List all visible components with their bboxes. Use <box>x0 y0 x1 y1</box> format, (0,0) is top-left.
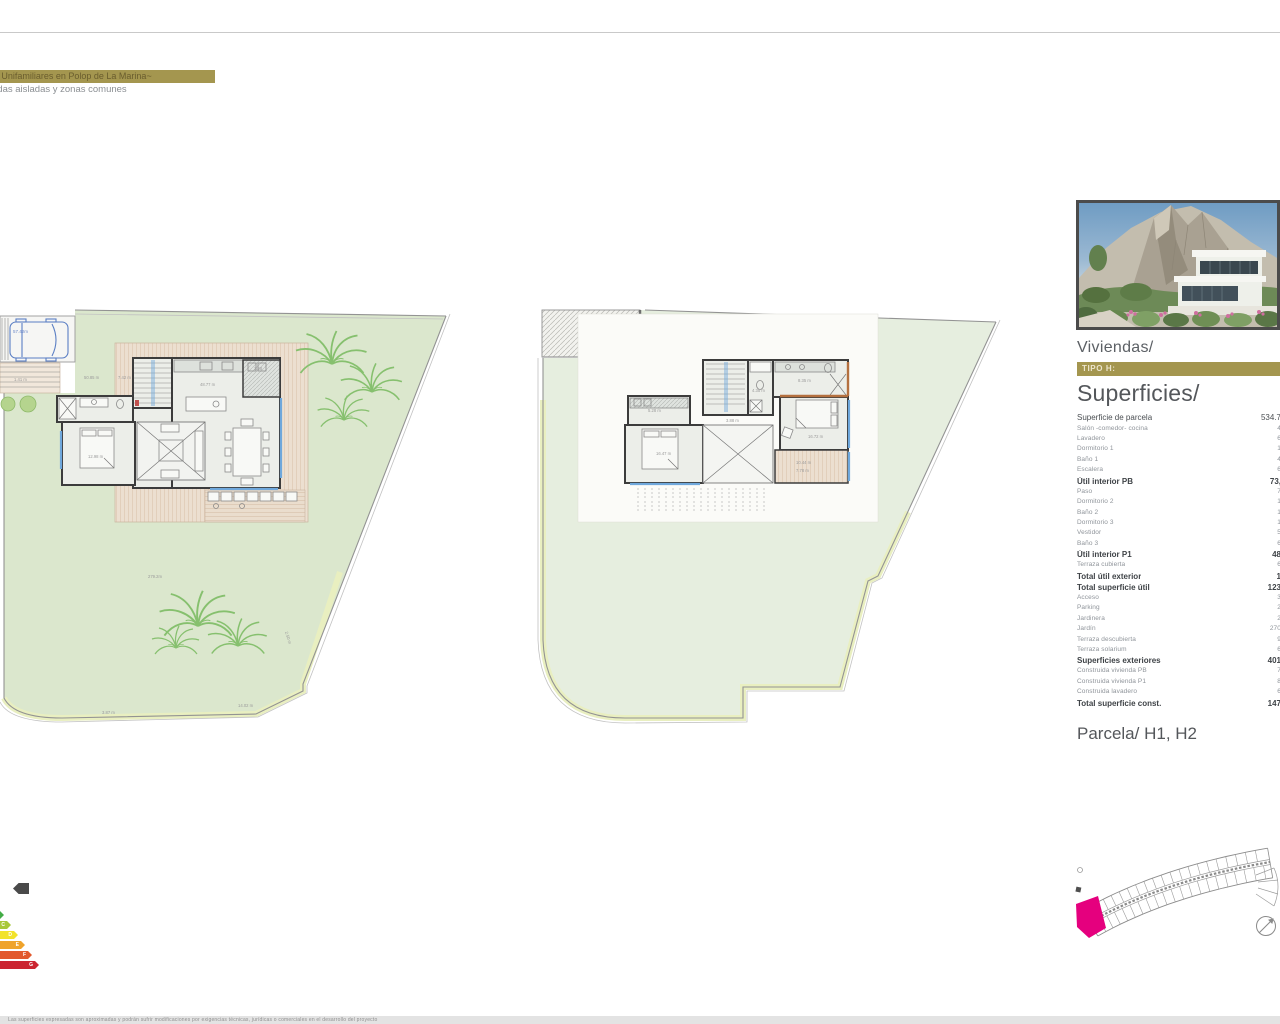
row-label: Parking <box>1077 604 1100 611</box>
table-row: Dormitorio 11 <box>1077 445 1280 455</box>
row-label: Terraza solarium <box>1077 646 1127 653</box>
row-label: Vestidor <box>1077 529 1101 536</box>
svg-text:8.35 m: 8.35 m <box>798 378 811 383</box>
site-map-fan <box>1256 868 1278 906</box>
plan-first-floor: 5.28 m 4.35 m 8.35 m 3.88 m 16.47 m 16.7… <box>530 300 1010 730</box>
row-label: Jardín <box>1077 625 1096 632</box>
table-row: Terraza solarium6 <box>1077 646 1280 656</box>
table-row: Vestidor5 <box>1077 529 1280 539</box>
svg-text:16.72 m: 16.72 m <box>808 434 824 439</box>
svg-text:3.28: 3.28 <box>254 366 263 371</box>
row-label: Baño 3 <box>1077 540 1098 547</box>
svg-text:48.77 m: 48.77 m <box>200 382 216 387</box>
row-label: Construida vivienda P1 <box>1077 678 1146 685</box>
bed-icon <box>642 429 678 469</box>
svg-text:1.41 m: 1.41 m <box>14 377 27 382</box>
table-row: Útil interior PB73, <box>1077 477 1280 488</box>
svg-text:3.87 m: 3.87 m <box>102 710 115 715</box>
row-label: Útil interior PB <box>1077 477 1133 486</box>
compass-icon <box>1257 917 1276 936</box>
row-label: Total superficie útil <box>1077 583 1150 592</box>
row-label: Terraza cubierta <box>1077 561 1125 568</box>
tipo-bar: TIPO H: <box>1077 362 1280 376</box>
row-value: 147 <box>1268 699 1280 708</box>
brochure-sheet: Viviendas Unifamiliares en Polop de La M… <box>0 0 1280 1024</box>
villa-photo <box>1076 200 1280 330</box>
top-rule <box>0 32 1280 33</box>
row-label: Dormitorio 2 <box>1077 498 1114 505</box>
table-row: Acceso3 <box>1077 594 1280 604</box>
parcela-heading: Parcela/ H1, H2 <box>1077 724 1197 744</box>
table-row: Superficie de parcela534.7 <box>1077 413 1280 425</box>
svg-text:279.2m: 279.2m <box>148 574 162 579</box>
dressing-counter-icon <box>630 398 688 408</box>
energy-bar: B <box>0 911 4 919</box>
row-label: Baño 2 <box>1077 509 1098 516</box>
row-label: Lavadero <box>1077 435 1105 442</box>
plan-ground-floor: 57.42m 1.41 m <box>0 300 480 730</box>
svg-text:5.28 m: 5.28 m <box>648 408 661 413</box>
energy-indicator-icon <box>13 883 29 894</box>
row-label: Total útil exterior <box>1077 572 1141 581</box>
row-label: Salón -comedor- cocina <box>1077 425 1148 432</box>
highlighted-parcel <box>1076 896 1106 938</box>
row-value: 534.7 <box>1261 413 1280 422</box>
svg-text:16.47 m: 16.47 m <box>656 451 672 456</box>
energy-bar: G <box>0 961 39 969</box>
row-label: Acceso <box>1077 594 1099 601</box>
svg-text:4.35 m: 4.35 m <box>752 388 765 393</box>
energy-bar: C <box>0 921 11 929</box>
row-label: Superficies exteriores <box>1077 656 1161 665</box>
table-row: Jardín270 <box>1077 625 1280 635</box>
energy-bar: E <box>0 941 25 949</box>
row-label: Escalera <box>1077 466 1103 473</box>
row-label: Construida lavadero <box>1077 688 1137 695</box>
site-map <box>1060 830 1280 970</box>
surfaces-table: Superficie de parcela534.7 Salón -comedo… <box>1077 413 1280 710</box>
table-row: Baño 21 <box>1077 509 1280 519</box>
table-row: Jardinera2 <box>1077 615 1280 625</box>
row-label: Dormitorio 1 <box>1077 445 1114 452</box>
row-value: 270 <box>1270 625 1280 632</box>
row-label: Jardinera <box>1077 615 1105 622</box>
energy-bar: F <box>0 951 32 959</box>
row-value: 123 <box>1268 583 1280 592</box>
svg-text:3.88 m: 3.88 m <box>726 418 739 423</box>
svg-text:14.02 m: 14.02 m <box>238 703 254 708</box>
svg-text:7.78 m: 7.78 m <box>796 468 809 473</box>
table-row: Baño 36 <box>1077 540 1280 550</box>
table-row: Construida lavadero6 <box>1077 688 1280 698</box>
svg-text:7.42 m: 7.42 m <box>118 375 131 380</box>
row-label: Total superficie const. <box>1077 699 1161 708</box>
energy-label: B C D E F G <box>0 880 80 975</box>
table-row: Baño 14 <box>1077 456 1280 466</box>
entry-walkway: 1.41 m <box>0 363 60 393</box>
table-row: Terraza descubierta9 <box>1077 636 1280 646</box>
row-label: Paso <box>1077 488 1092 495</box>
parking-dim: 57.42m <box>13 329 28 334</box>
table-row: Útil interior P148 <box>1077 550 1280 561</box>
viviendas-heading: Viviendas/ <box>1077 339 1154 357</box>
row-value: 48 <box>1272 550 1280 559</box>
row-label: Construida vivienda PB <box>1077 667 1147 674</box>
table-row: Paso7 <box>1077 488 1280 498</box>
svg-text:12.98 m: 12.98 m <box>88 454 104 459</box>
table-row: Dormitorio 31 <box>1077 519 1280 529</box>
table-row: Total superficie útil123 <box>1077 583 1280 594</box>
energy-bar: D <box>0 931 18 939</box>
row-value: 1 <box>1277 572 1280 581</box>
svg-text:50.85 m: 50.85 m <box>84 375 100 380</box>
living-void-cross <box>137 422 205 480</box>
table-row: Superficies exteriores401 <box>1077 656 1280 667</box>
header-title-bar: Viviendas Unifamiliares en Polop de La M… <box>0 70 215 83</box>
superficies-heading: Superficies/ <box>1077 380 1200 407</box>
bush-icon <box>1 397 15 411</box>
table-row: Total superficie const.147 <box>1077 699 1280 710</box>
table-row: Total útil exterior1 <box>1077 572 1280 583</box>
bed-icon <box>80 428 114 468</box>
row-label: Útil interior P1 <box>1077 550 1132 559</box>
parking-area: 57.42m <box>0 316 75 362</box>
table-row: Terraza cubierta6 <box>1077 561 1280 571</box>
table-row: Construida vivienda PB7 <box>1077 667 1280 677</box>
row-value: 401 <box>1268 656 1280 665</box>
row-label: Baño 1 <box>1077 456 1098 463</box>
table-row: Parking2 <box>1077 604 1280 614</box>
bush-icon <box>20 396 36 412</box>
header-subtitle: viviendas aisladas y zonas comunes <box>0 84 127 95</box>
row-label: Superficie de parcela <box>1077 413 1152 422</box>
table-row: Construida vivienda P18 <box>1077 678 1280 688</box>
row-label: Dormitorio 3 <box>1077 519 1114 526</box>
table-row: Dormitorio 21 <box>1077 498 1280 508</box>
table-row: Escalera6 <box>1077 466 1280 476</box>
row-label: Terraza descubierta <box>1077 636 1136 643</box>
svg-text:10.44 m: 10.44 m <box>796 460 812 465</box>
map-marker <box>1078 868 1083 873</box>
footer-microtext: Las superficies expresadas son aproximad… <box>8 1016 438 1024</box>
map-marker <box>1075 887 1081 893</box>
table-row: Salón -comedor- cocina4 <box>1077 425 1280 435</box>
row-value: 73, <box>1270 477 1280 486</box>
table-row: Lavadero6 <box>1077 435 1280 445</box>
